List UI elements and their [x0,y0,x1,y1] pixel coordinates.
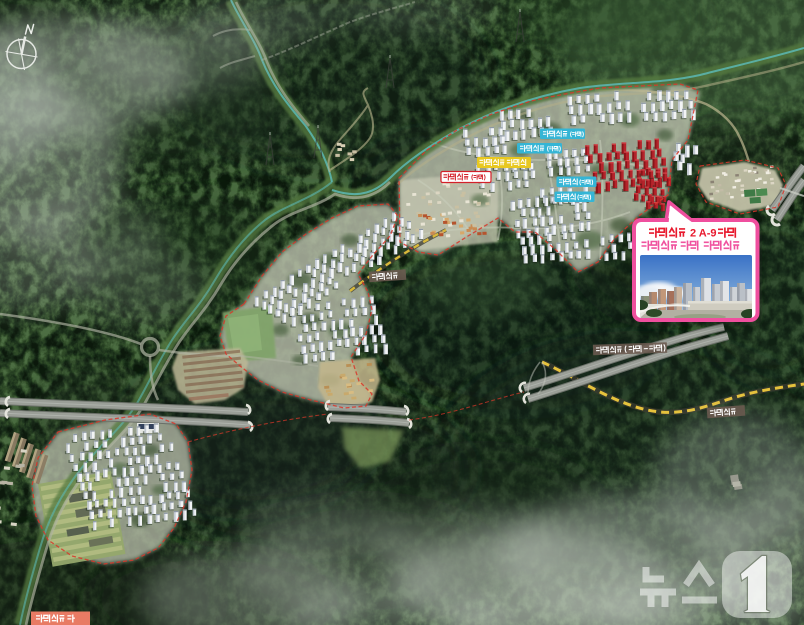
svg-text:2 A-9: 2 A-9 [690,228,717,240]
